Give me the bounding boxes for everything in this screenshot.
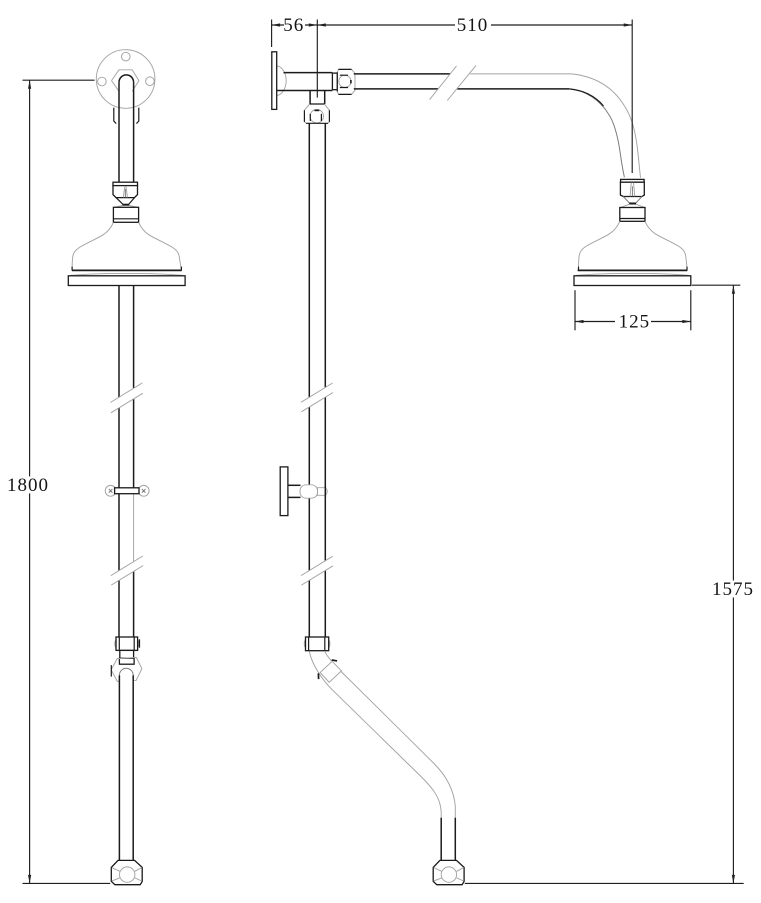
svg-text:56: 56	[283, 15, 304, 36]
svg-text:1800: 1800	[7, 475, 49, 496]
svg-text:125: 125	[619, 312, 651, 333]
svg-text:1575: 1575	[712, 579, 754, 600]
svg-text:510: 510	[457, 15, 489, 36]
